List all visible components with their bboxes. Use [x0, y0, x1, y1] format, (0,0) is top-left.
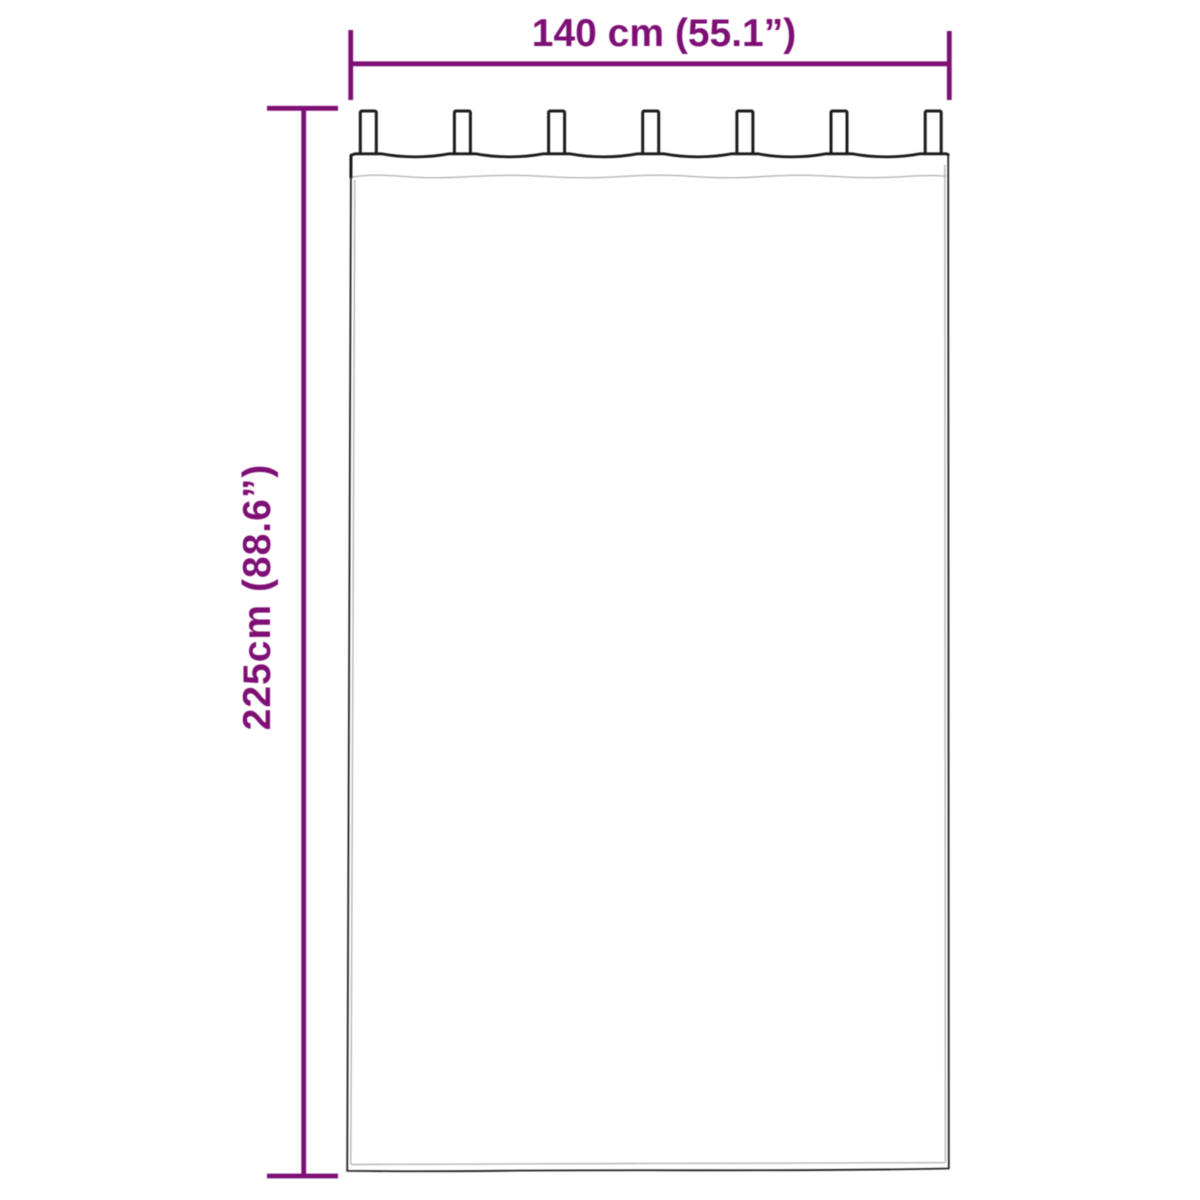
- svg-text:225cm (88.6”): 225cm (88.6”): [236, 464, 279, 731]
- svg-text:140 cm (55.1”): 140 cm (55.1”): [532, 12, 797, 55]
